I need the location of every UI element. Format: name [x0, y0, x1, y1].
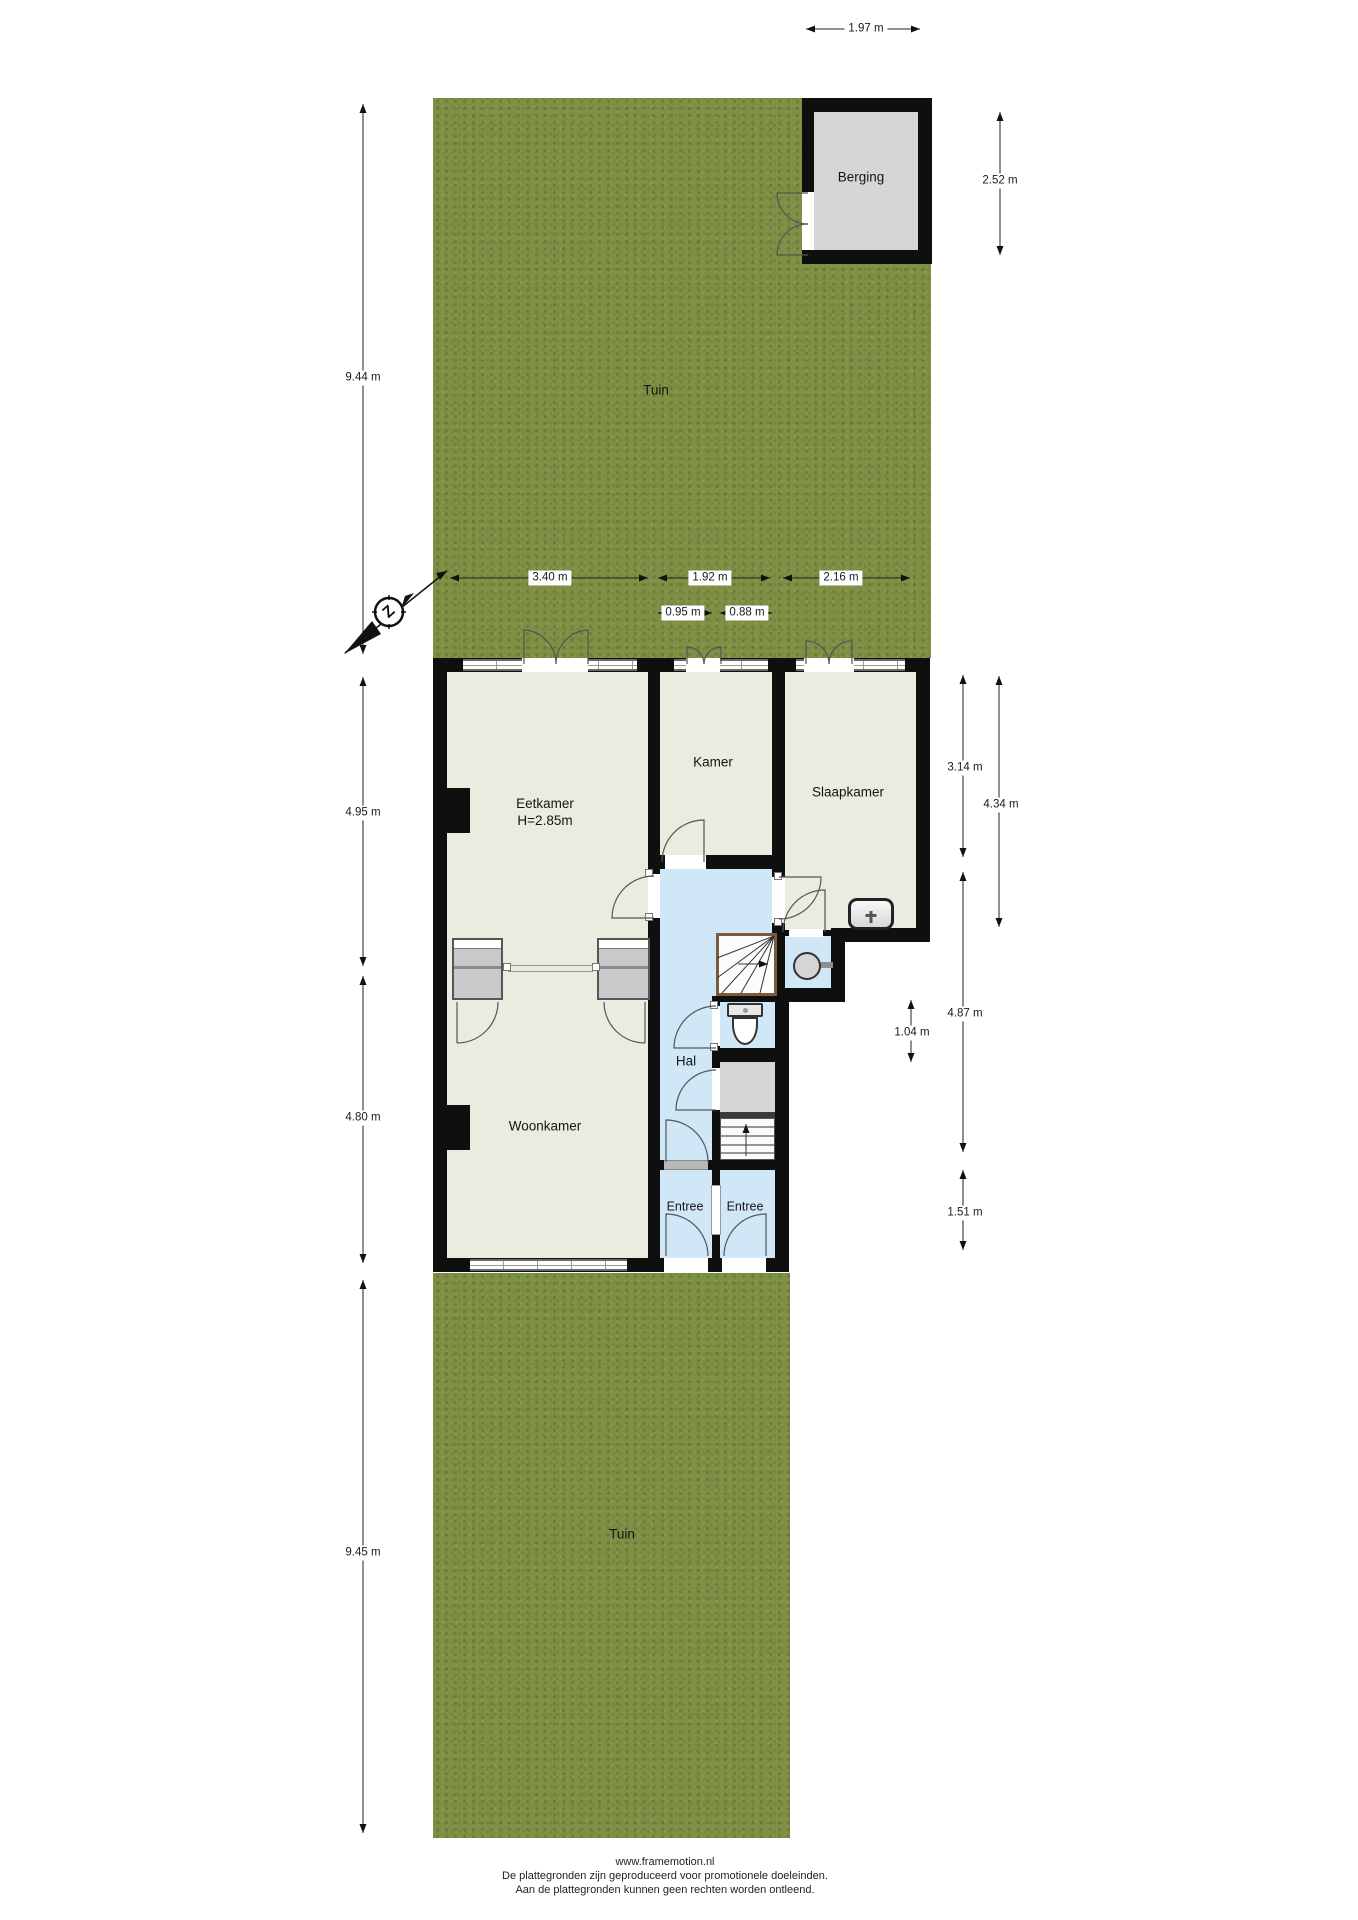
compass-needle-line: [345, 571, 447, 653]
ensuite-closet-left: [452, 938, 503, 1000]
sink-icon: [848, 898, 894, 930]
ensuite-closet-right: [597, 938, 650, 1000]
berging-wall-top: [802, 98, 932, 112]
compass-icon: Z: [344, 571, 447, 654]
wall-toilet-bottom: [712, 1048, 775, 1062]
room-label-tuin-top: Tuin: [643, 382, 669, 399]
berging-wall-left: [802, 98, 814, 192]
garden-bottom: [433, 1273, 790, 1838]
dimension-label-left-lower: 4.80 m: [341, 1111, 384, 1126]
dimension-label-left-upper: 4.95 m: [341, 806, 384, 821]
dimension-label-tuin-top: 9.44 m: [341, 371, 384, 386]
wall-ensuite-stub: [650, 938, 660, 1000]
compass-south-arrow: [344, 621, 381, 654]
door-opening-slaapkamer-garden: [804, 658, 854, 672]
room-label-hal: Hal: [676, 1053, 696, 1070]
dimension-label-slaapkamer-width: 2.16 m: [819, 571, 862, 586]
shower-icon: [793, 952, 821, 980]
dimension-label-berging-width: 1.97 m: [844, 22, 887, 37]
door-post: [710, 1001, 718, 1009]
room-hal-corridor2-floor: [660, 996, 712, 1160]
door-opening-entree-left: [664, 1258, 708, 1272]
door-opening-meterkast: [712, 1070, 720, 1110]
dimension-label-berging-depth: 2.52 m: [978, 174, 1021, 189]
chimney-eetkamer: [447, 788, 470, 833]
room-meterkast-floor: [720, 1062, 775, 1112]
wall-spine-a: [648, 672, 660, 874]
door-post: [774, 872, 782, 880]
dimension-label-088: 0.88 m: [725, 606, 768, 621]
room-label-eetkamer-height: H=2.85m: [516, 812, 574, 829]
compass-letter: Z: [380, 602, 399, 621]
room-hal-top-floor: [660, 869, 777, 933]
wall-column-d: [712, 1235, 720, 1258]
floorplan-canvas: Z 1.97 m 2.52 m 9.44 m 3.40 m 1.92 m 2.1…: [0, 0, 1358, 1920]
dimension-label-kamer-width: 1.92 m: [688, 571, 731, 586]
door-post: [645, 869, 653, 877]
footer-website: www.framemotion.nl: [0, 1855, 1330, 1869]
room-label-slaapkamer: Slaapkamer: [812, 784, 884, 801]
wall-kamer-slaapkamer-a: [772, 658, 785, 877]
wall-right-lower: [775, 988, 789, 1272]
wall-right-upper: [916, 658, 930, 942]
door-post: [710, 1043, 718, 1051]
door-opening-kamer-garden: [686, 658, 720, 672]
berging-wall-bottom: [802, 250, 932, 264]
dimension-label-right-4: 1.51 m: [943, 1206, 986, 1221]
door-opening-slaapkamer-douche: [789, 929, 823, 937]
dimension-label-tuin-bottom: 9.45 m: [341, 1546, 384, 1561]
door-post: [774, 918, 782, 926]
room-label-entree-left: Entree: [667, 1199, 704, 1216]
door-opening-eetkamer-garden: [522, 658, 588, 672]
wall-spine-c: [648, 1170, 660, 1258]
door-opening-toilet: [712, 1006, 720, 1046]
door-opening-eetkamer-hal: [648, 874, 660, 918]
room-label-eetkamer: Eetkamer H=2.85m: [516, 795, 574, 829]
door-threshold-hal-entree: [664, 1160, 708, 1170]
room-label-berging: Berging: [838, 169, 885, 186]
door-opening-kamer: [665, 855, 706, 869]
staircase-straight: [720, 1118, 775, 1160]
footer-disclaimer-1: De plattegronden zijn geproduceerd voor …: [0, 1869, 1330, 1883]
ensuite-sliding-doors: [508, 965, 593, 972]
room-slaapkamer-floor: [785, 672, 916, 930]
dimension-label-right-3: 4.87 m: [943, 1007, 986, 1022]
room-label-entree-right: Entree: [727, 1199, 764, 1216]
dimension-label-095: 0.95 m: [661, 606, 704, 621]
faucet-icon: [870, 911, 873, 923]
wall-slaapkamer-bottom: [838, 928, 930, 942]
opening-entree-divider: [711, 1185, 721, 1235]
door-post: [503, 963, 511, 971]
compass-ring: [375, 598, 403, 626]
room-hal-corridor-floor: [660, 933, 716, 996]
dimension-label-right-1: 3.14 m: [943, 761, 986, 776]
wall-column-c: [712, 1110, 720, 1185]
footer-disclaimer-2: Aan de plattegronden kunnen geen rechten…: [0, 1883, 1330, 1897]
wall-kamer-bottom-b: [706, 855, 772, 869]
toilet-tank-icon: [727, 1003, 763, 1017]
door-opening-entree-right: [722, 1258, 766, 1272]
door-opening-hal-slaapkamer: [772, 877, 785, 923]
staircase-winder: [716, 933, 777, 996]
footer: www.framemotion.nl De plattegronden zijn…: [0, 1855, 1330, 1897]
window-woonkamer: [470, 1259, 627, 1271]
wall-stairwell-bottom: [712, 996, 775, 1002]
dimension-label-eetkamer-width: 3.40 m: [528, 571, 571, 586]
room-label-woonkamer: Woonkamer: [509, 1118, 582, 1135]
dimension-label-104: 1.04 m: [890, 1026, 933, 1041]
berging-door-opening: [802, 192, 814, 250]
dimension-label-right-2: 4.34 m: [979, 798, 1022, 813]
room-label-tuin-bottom: Tuin: [609, 1526, 635, 1543]
room-label-kamer: Kamer: [693, 754, 733, 771]
wall-left: [433, 658, 447, 1272]
door-post: [592, 963, 600, 971]
berging-wall-right: [918, 98, 932, 264]
door-post: [645, 913, 653, 921]
compass-north-wedge: [401, 593, 414, 609]
room-label-eetkamer-name: Eetkamer: [516, 795, 574, 812]
chimney-woonkamer: [447, 1105, 470, 1150]
